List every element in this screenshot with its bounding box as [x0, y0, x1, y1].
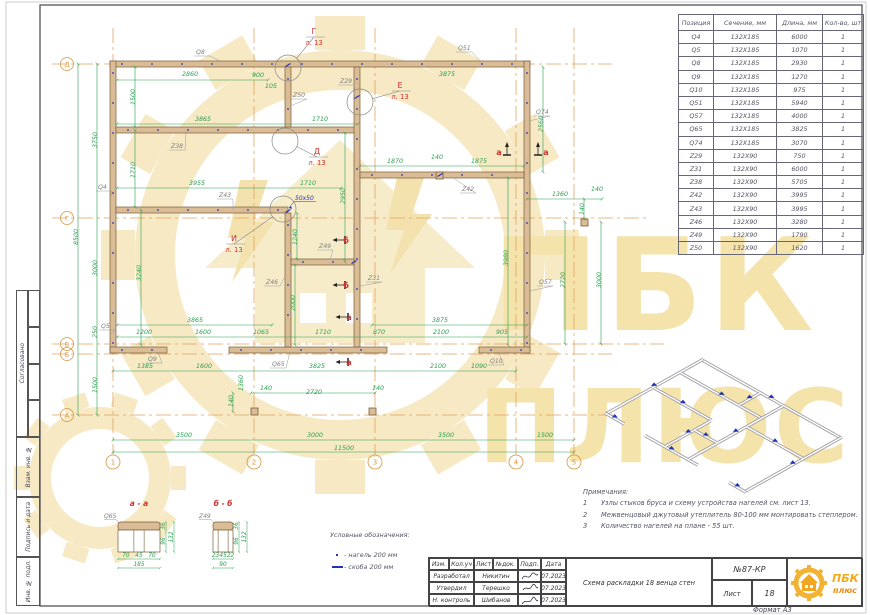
table-row: Q8132X18529301	[679, 57, 864, 70]
nagel-dot	[356, 78, 358, 80]
nagel-dot	[112, 312, 114, 314]
strip-label: Инв. № подл.	[25, 560, 32, 602]
tb-header-ndok: №док.	[493, 558, 518, 570]
table-cell: Z42	[679, 189, 714, 202]
table-row: Q74132X18530701	[679, 136, 864, 149]
table-cell: Q57	[679, 110, 714, 123]
dim-label: 1710	[130, 162, 137, 178]
dim-label: 3500	[176, 432, 192, 439]
section-letter: а	[543, 148, 548, 157]
section-letter: а	[346, 358, 351, 367]
watermark-house-body	[255, 268, 425, 343]
wall-beam	[116, 127, 359, 133]
table-cell: 1	[823, 96, 864, 109]
table-row: Z50132X9016201	[679, 242, 864, 255]
detail-cap	[213, 522, 233, 530]
table-cell: 132X185	[714, 96, 777, 109]
wall-beam	[110, 61, 530, 67]
table-cell: 5705	[777, 176, 823, 189]
nagel-dot	[247, 209, 249, 211]
table-cell: 1	[823, 162, 864, 175]
nagel-dot	[511, 63, 513, 65]
nagel-dot	[526, 162, 528, 164]
column-header: Сечение, мм	[714, 15, 777, 31]
dim-label: 2950	[340, 188, 347, 204]
table-cell: 6000	[777, 162, 823, 175]
table-row: Q10132X1859751	[679, 83, 864, 96]
note-number: 1	[583, 499, 601, 507]
tb-date: 07.2023	[541, 594, 566, 607]
nagel-dot	[187, 209, 189, 211]
nagel-dot	[112, 102, 114, 104]
part-label: Z29	[339, 78, 352, 85]
note-item: 3Количество нагелей на плане - 55 шт.	[583, 522, 865, 530]
nagel-dot	[356, 198, 358, 200]
detail-title: а - а	[130, 499, 148, 508]
watermark-gear-tooth	[133, 136, 162, 153]
nagel-dot	[461, 174, 463, 176]
dim-label: 1710	[312, 116, 328, 123]
nagel-dot	[526, 72, 528, 74]
table-cell: Z46	[679, 215, 714, 228]
table-cell: 750	[777, 149, 823, 162]
nagel-dot	[181, 63, 183, 65]
nagel-dot	[360, 349, 362, 351]
post	[251, 408, 258, 415]
nagel-dot	[157, 129, 159, 131]
legend-item: - скоба 200 мм	[330, 563, 440, 571]
strip-empty-box	[28, 364, 40, 400]
watermark-gear-tooth	[122, 396, 127, 410]
dim-label: 3825	[309, 363, 325, 370]
table-cell: Z29	[679, 149, 714, 162]
nagel-dot	[332, 261, 334, 263]
legend-title: Условные обозначения:	[330, 531, 440, 539]
table-cell: Z49	[679, 228, 714, 241]
nagel-dot	[112, 342, 114, 344]
note-text: Межвенцовый джутовый утеплитель 80-100 м…	[601, 511, 858, 519]
tb-header-data: Дата	[541, 558, 566, 570]
dim-label: 132	[242, 531, 248, 542]
table-row: Q65132X18538251	[679, 123, 864, 136]
drawing-title: Схема раскладки 18 венца стен	[566, 558, 712, 607]
part-label: Q9	[148, 356, 157, 363]
dim-label: 1710	[315, 329, 331, 336]
dim-label: 3865	[187, 317, 203, 324]
table-cell: 1070	[777, 44, 823, 57]
tb-name: Терешко	[474, 582, 518, 594]
notes-title: Примечания:	[583, 488, 865, 496]
nagel-dot	[301, 63, 303, 65]
axis-bubble-label: А	[65, 411, 70, 419]
watermark-gear-tooth	[73, 396, 78, 410]
section-details: а - аQ653696132704570185б - бZ4936961322…	[104, 499, 248, 568]
table-cell: 1	[823, 44, 864, 57]
dim-label: 1385	[137, 363, 153, 370]
node-sheet-ref: л. 13	[391, 93, 408, 101]
section-letter: а	[346, 313, 351, 322]
nagel-dot	[526, 252, 528, 254]
nagel-dot	[361, 63, 363, 65]
label-leader	[290, 99, 307, 106]
axis-bubble-label: Д	[64, 60, 69, 68]
nagel-dot	[490, 349, 492, 351]
part-label: Z43	[218, 192, 231, 199]
table-row: Z29132X907501	[679, 149, 864, 162]
nagel-dot	[287, 254, 289, 256]
nagel-dot	[287, 224, 289, 226]
title-block: Изм. Кол.уч Лист №док. Подп. Дата Разраб…	[428, 557, 862, 606]
table-cell: 6000	[777, 31, 823, 44]
dim-label: 1500	[537, 432, 553, 439]
part-label: Q5	[101, 323, 110, 330]
dim-label: 96	[234, 537, 240, 545]
strip-cell-vzam-inv: Взам. инв. №	[16, 437, 40, 497]
nagel-dot	[491, 174, 493, 176]
tb-header-podp: Подп.	[518, 558, 541, 570]
strip-label: Согласовано	[19, 343, 26, 383]
dim-label: 36	[161, 522, 167, 530]
legend-items: - нагель 200 мм- скоба 200 мм	[330, 551, 440, 571]
dim-label: 3980	[503, 250, 510, 266]
nagel-dot	[127, 129, 129, 131]
table-cell: 132X90	[714, 202, 777, 215]
table-cell: Q51	[679, 96, 714, 109]
dim-label: 3750	[92, 132, 99, 148]
table-cell: 132X90	[714, 242, 777, 255]
table-row: Q9132X18512701	[679, 70, 864, 83]
format-label: Формат А3	[753, 606, 792, 614]
dim-label: 1200	[136, 329, 152, 336]
nagel-dot	[431, 174, 433, 176]
watermark-house-window	[300, 293, 326, 323]
dim-label: 1240	[292, 229, 299, 245]
table-cell: 4000	[777, 110, 823, 123]
dim-label: 105	[265, 83, 277, 90]
nagel-dot	[241, 63, 243, 65]
table-row: Z38132X9057051	[679, 176, 864, 189]
nagel-dot	[356, 228, 358, 230]
skoba-line-icon	[330, 566, 344, 567]
post	[369, 408, 376, 415]
dim-label: 2000	[290, 295, 297, 311]
nagel-dot	[356, 318, 358, 320]
tb-signature	[518, 570, 541, 582]
section-letter: б	[343, 235, 349, 245]
strip-cell-podpis-data: Подпись и дата	[16, 497, 40, 557]
dim-label: 2860	[182, 71, 198, 78]
doc-number: №87-КР	[712, 558, 787, 580]
callout-label: 50х50	[295, 195, 314, 202]
table-cell: Q9	[679, 70, 714, 83]
strip-empty-box	[28, 400, 40, 437]
logo-text-top: ПБК	[832, 572, 860, 585]
wall-beam	[229, 347, 387, 353]
axis-bubble-label: Г	[65, 214, 69, 222]
dim-label: 185	[133, 562, 144, 568]
note-text: Узлы стыков бруса и схему устройства наг…	[601, 499, 811, 507]
nagel-dot	[371, 174, 373, 176]
tb-name: Никитин	[474, 570, 518, 582]
axis-bubble-label: В	[65, 340, 69, 348]
section-letter: а	[496, 148, 501, 157]
dim-label: 140	[431, 154, 443, 161]
nagel-dot	[520, 349, 522, 351]
note-number: 3	[583, 522, 601, 530]
nagel-dot	[356, 288, 358, 290]
dim-label: 22	[227, 553, 235, 559]
dim-label: 1500	[92, 377, 99, 393]
sheet-label: Лист	[712, 580, 752, 607]
nagel-dot	[356, 138, 358, 140]
watermark-gear-tooth	[157, 427, 169, 436]
legend-block: Условные обозначения: - нагель 200 мм- с…	[330, 531, 440, 575]
dim-label: 3000	[596, 272, 603, 288]
nagel-dot	[211, 63, 213, 65]
table-cell: 132X90	[714, 228, 777, 241]
nagel-dot	[300, 349, 302, 351]
dim-label: 2720	[560, 272, 567, 288]
table-cell: 1790	[777, 228, 823, 241]
tb-signature	[518, 582, 541, 594]
dim-label: 1600	[196, 363, 212, 370]
nagel-dot	[331, 63, 333, 65]
nagel-dot	[121, 63, 123, 65]
table-cell: 1	[823, 242, 864, 255]
table-cell: 132X185	[714, 83, 777, 96]
legend-text: - нагель 200 мм	[344, 551, 397, 559]
strip-cell-inv-podl: Инв. № подл.	[16, 557, 40, 606]
table-cell: 5940	[777, 96, 823, 109]
dim-label: 1090	[471, 363, 487, 370]
table-cell: 1	[823, 57, 864, 70]
dim-label: 3500	[438, 432, 454, 439]
tb-role: Утвердил	[429, 582, 474, 594]
table-cell: Z31	[679, 162, 714, 175]
legend-text: - скоба 200 мм	[344, 563, 393, 571]
strip-cell-soglasovano: Согласовано	[16, 290, 28, 437]
table-cell: 975	[777, 83, 823, 96]
notes-block: Примечания: 1Узлы стыков бруса и схему у…	[583, 488, 865, 534]
legend-item: - нагель 200 мм	[330, 551, 440, 559]
tb-role: Разработал	[429, 570, 474, 582]
nagel-dot	[287, 314, 289, 316]
dim-label: 1065	[253, 329, 269, 336]
table-cell: 3070	[777, 136, 823, 149]
nagel-dot	[302, 261, 304, 263]
nagel-dot	[127, 209, 129, 211]
part-label: Z50	[292, 92, 305, 99]
nagel-dot	[356, 258, 358, 260]
table-cell: Q65	[679, 123, 714, 136]
notes-items: 1Узлы стыков бруса и схему устройства на…	[583, 499, 865, 530]
nagel-dot	[526, 192, 528, 194]
wall-beam	[116, 207, 288, 213]
nagel-dot	[337, 129, 339, 131]
table-cell: 1	[823, 176, 864, 189]
detail-title: б - б	[214, 499, 233, 508]
detail-body	[118, 530, 160, 552]
table-cell: 3280	[777, 215, 823, 228]
table-cell: 3995	[777, 202, 823, 215]
nagel-dot-icon	[330, 554, 344, 557]
nagel-dot	[526, 342, 528, 344]
part-label: Z49	[318, 243, 331, 250]
column-header: Кол-во, шт	[823, 15, 864, 31]
column-header: Позиция	[679, 15, 714, 31]
dim-label: 36	[234, 522, 240, 530]
dim-label: 70	[148, 553, 156, 559]
nagel-dot	[526, 282, 528, 284]
node-sheet-ref: л. 13	[305, 39, 322, 47]
part-label: Q8	[196, 49, 205, 56]
dim-label: 70	[122, 553, 130, 559]
part-label: Z38	[170, 143, 183, 150]
tb-header-izm: Изм.	[429, 558, 449, 570]
table-cell: 1	[823, 123, 864, 136]
table-row: Z49132X9017901	[679, 228, 864, 241]
table-cell: 1	[823, 228, 864, 241]
cut-list-table: ПозицияСечение, ммДлина, ммКол-во, штQ41…	[678, 14, 864, 255]
note-item: 1Узлы стыков бруса и схему устройства на…	[583, 499, 865, 507]
nagel-dot	[356, 108, 358, 110]
dim-label: 1870	[387, 158, 403, 165]
nagel-dot	[287, 78, 289, 80]
signature-glyph	[521, 584, 539, 593]
table-cell: 132X185	[714, 70, 777, 83]
table-row: Q51132X18559401	[679, 96, 864, 109]
note-number: 2	[583, 511, 601, 519]
table-cell: 132X90	[714, 189, 777, 202]
wall-beam	[285, 213, 291, 347]
dim-label: 905	[496, 329, 508, 336]
table-cell: 1	[823, 83, 864, 96]
tb-signature	[518, 594, 541, 607]
table-cell: 2930	[777, 57, 823, 70]
nagel-dot	[277, 209, 279, 211]
nagel-dot	[112, 132, 114, 134]
part-label: Q4	[98, 184, 107, 191]
logo-text-bottom: плюс	[833, 586, 857, 595]
table-cell: 132X185	[714, 123, 777, 136]
dim-label: 132	[169, 531, 175, 542]
note-item: 2Межвенцовый джутовый утеплитель 80-100 …	[583, 511, 865, 519]
axis-bubble-label: 4	[514, 459, 519, 467]
axis-bubble-label: Б	[65, 350, 69, 358]
table-row: Q5132X18510701	[679, 44, 864, 57]
nagel-dot	[121, 349, 123, 351]
nagel-dot	[157, 209, 159, 211]
watermark-gear	[40, 418, 160, 538]
part-label: Q10	[490, 358, 503, 365]
dim-label: 140	[579, 203, 586, 215]
table-row: Z31132X9060001	[679, 162, 864, 175]
table-cell: Q4	[679, 31, 714, 44]
nagel-dot	[451, 63, 453, 65]
dim-label: 140	[591, 186, 603, 193]
dim-label: 45	[135, 553, 143, 559]
node-label: И	[231, 234, 237, 243]
nagel-dot	[247, 129, 249, 131]
nagel-dot	[112, 252, 114, 254]
table-cell: 1270	[777, 70, 823, 83]
dim-label: 3000	[92, 260, 99, 276]
table-row: Q4132X18560001	[679, 31, 864, 44]
table-cell: 132X185	[714, 136, 777, 149]
table-cell: 3995	[777, 189, 823, 202]
nagel-dot	[526, 222, 528, 224]
company-logo: ПБК плюс	[787, 558, 863, 607]
table-row: Z43132X9039951	[679, 202, 864, 215]
table-cell: 1	[823, 31, 864, 44]
dim-label: 1360	[552, 191, 568, 198]
axis-bubble-label: 5	[572, 459, 576, 467]
axis-bubble-label: 2	[252, 459, 256, 467]
watermark-text: ПЛЮС	[478, 368, 851, 487]
node-label: Е	[397, 81, 402, 90]
table-cell: 1	[823, 189, 864, 202]
table-row: Q57132X18540001	[679, 110, 864, 123]
sheet-number: 18	[752, 580, 787, 607]
wall-beam	[524, 61, 530, 353]
table-cell: 3825	[777, 123, 823, 136]
strip-label: Подпись и дата	[25, 502, 32, 552]
dim-label: 250	[92, 326, 99, 338]
dim-label: 11500	[334, 445, 354, 452]
nagel-dot	[391, 63, 393, 65]
wall-beam	[110, 61, 116, 353]
tb-header-koluch: Кол.уч	[449, 558, 474, 570]
axis-bubble-label: 1	[111, 459, 115, 467]
node-label: Д	[314, 147, 320, 156]
node-label: Г	[312, 27, 317, 36]
detail-cap	[118, 522, 160, 530]
watermark-gear-tooth	[221, 433, 238, 462]
table-cell: 132X90	[714, 149, 777, 162]
table-cell: Q8	[679, 57, 714, 70]
table-cell: 1	[823, 110, 864, 123]
nagel-dot	[112, 162, 114, 164]
detail-body	[213, 530, 233, 552]
nagel-dot	[271, 63, 273, 65]
nagel-dot	[287, 284, 289, 286]
dim-label: 1710	[300, 180, 316, 187]
table-row: Z46132X9032801	[679, 215, 864, 228]
nagel-dot	[217, 209, 219, 211]
nagel-dot	[112, 282, 114, 284]
nagel-dot	[112, 72, 114, 74]
dim-label: 3865	[195, 116, 211, 123]
table-cell: 132X90	[714, 215, 777, 228]
dim-label: 1875	[471, 158, 487, 165]
part-label: Z31	[367, 275, 380, 282]
table-cell: 132X90	[714, 162, 777, 175]
tb-date: 07.2023	[541, 570, 566, 582]
nagel-dot	[240, 349, 242, 351]
table-cell: 1	[823, 149, 864, 162]
dim-label: 3875	[439, 71, 455, 78]
nagel-dot	[112, 222, 114, 224]
dim-label: 3955	[189, 180, 205, 187]
post	[581, 219, 588, 226]
dim-label: 8500	[73, 229, 80, 245]
part-label: Q51	[458, 45, 471, 52]
part-label: Q74	[536, 109, 549, 116]
nagel-dot	[401, 174, 403, 176]
drawing-sheet: ПБКПЛЮС12345ДГВБА28609001053875386517101…	[0, 0, 870, 615]
dim-label: 96	[161, 537, 167, 545]
wall-beam	[110, 347, 167, 353]
